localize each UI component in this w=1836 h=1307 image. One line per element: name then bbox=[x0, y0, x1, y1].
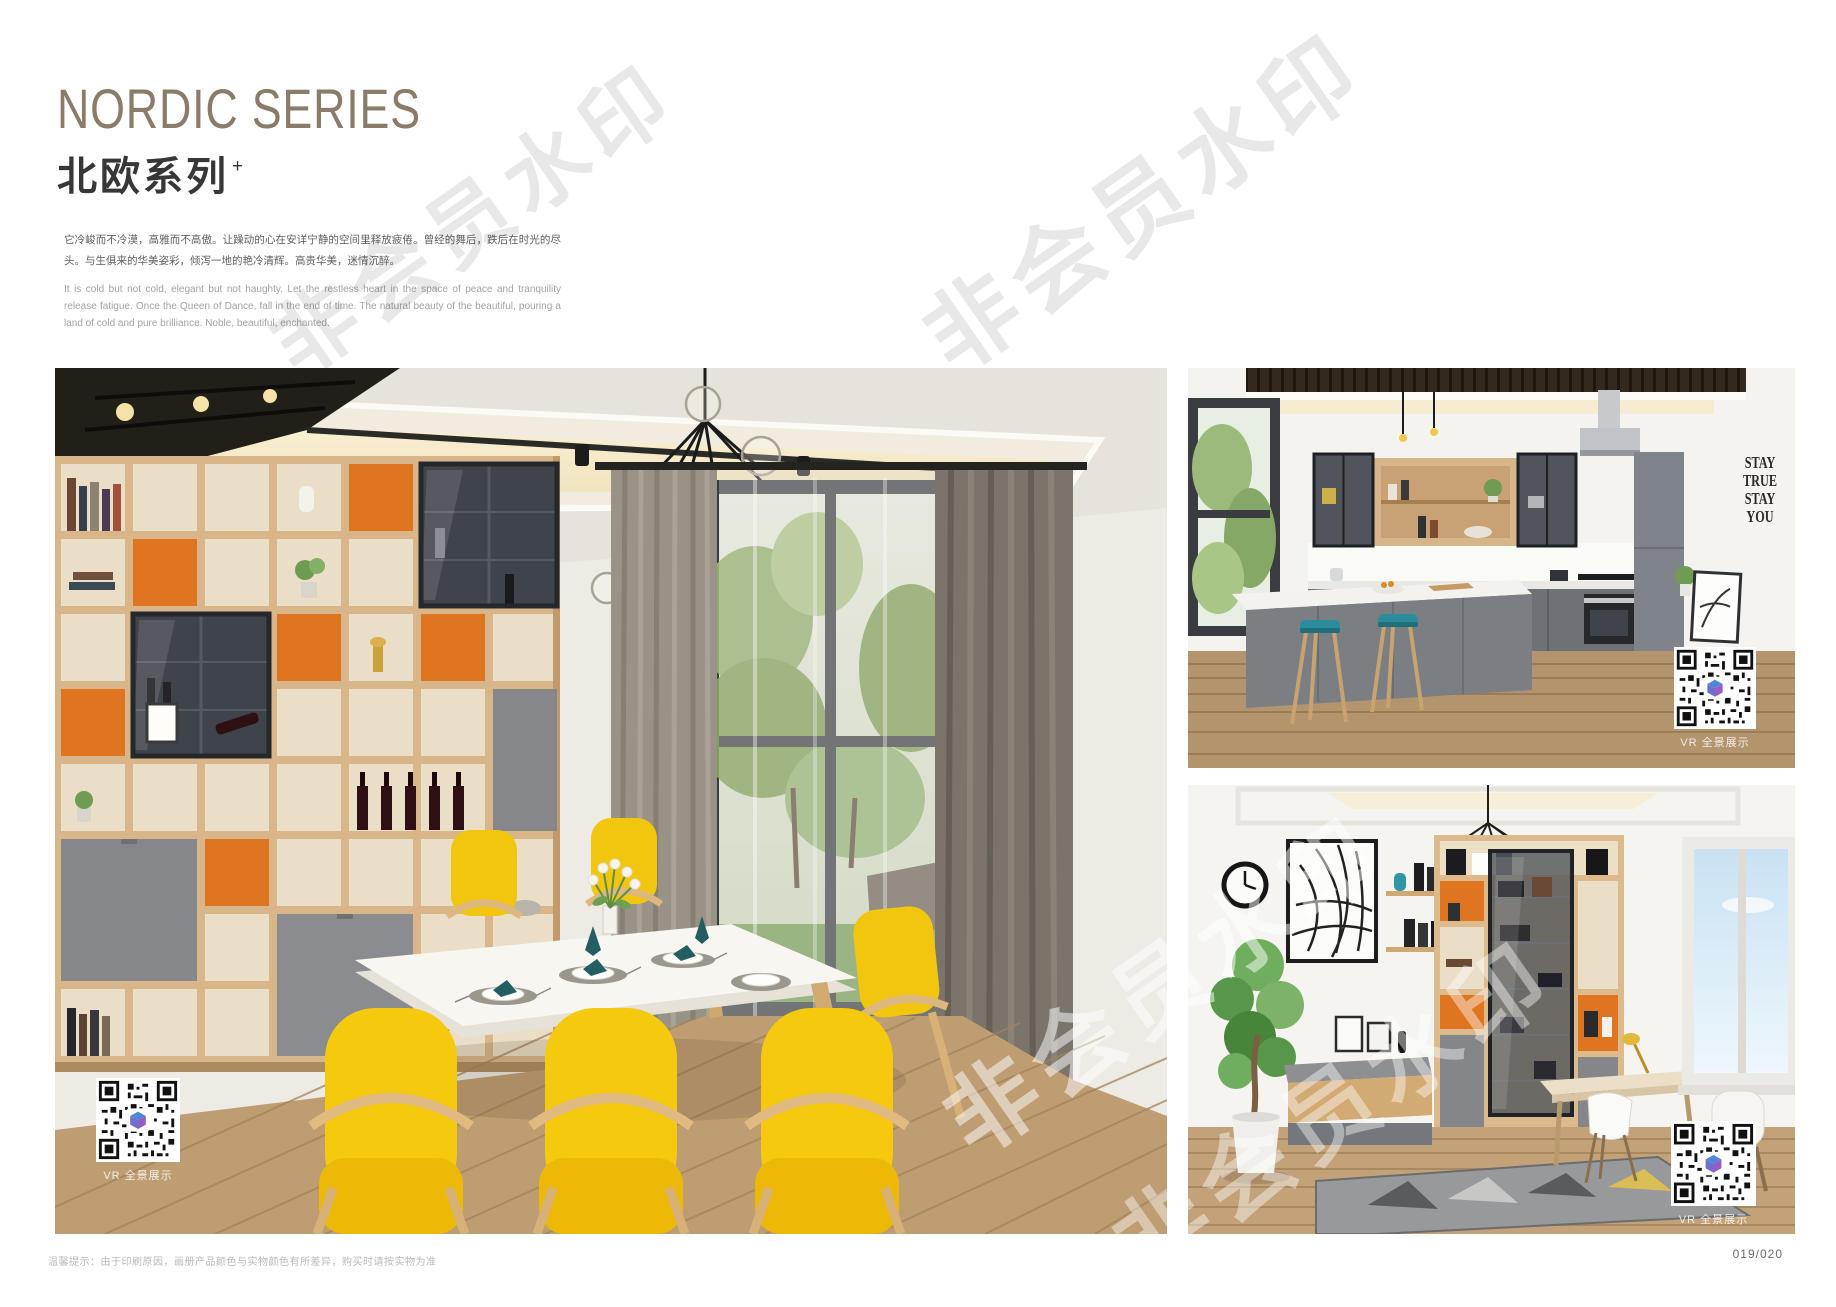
decal-line: TRUE bbox=[1743, 472, 1777, 490]
series-desc-zh: 它冷峻而不冷漠，高雅而不高傲。让躁动的心在安详宁静的空间里释放疲倦。曾经的舞后，… bbox=[64, 230, 561, 272]
ceiling-spotlight bbox=[263, 389, 277, 403]
vr-badge-dining: VR 全景展示 bbox=[96, 1078, 180, 1183]
vr-badge-study: VR 全景展示 bbox=[1671, 1121, 1756, 1227]
footer-note: 温馨提示：由于印刷原因，画册产品颜色与实物颜色有所差异，购买时请按实物为准 bbox=[48, 1253, 437, 1268]
glass-cabinet bbox=[1518, 454, 1576, 546]
ceiling-spotlight bbox=[116, 403, 134, 421]
glass-cabinet bbox=[1314, 454, 1373, 546]
dining-chairs-near bbox=[311, 1008, 907, 1234]
decal-line: STAY bbox=[1745, 490, 1776, 508]
glass-display-case bbox=[1490, 851, 1572, 1115]
abstract-wall-art bbox=[1288, 841, 1376, 961]
series-title-zh: 北欧系列+ bbox=[57, 144, 246, 202]
dining-chair bbox=[311, 1008, 471, 1234]
page-number: 019/020 bbox=[1690, 1247, 1783, 1261]
series-title-plus: + bbox=[232, 156, 246, 177]
watermark: 非会员水印 bbox=[893, 0, 1387, 398]
dining-chair bbox=[747, 1008, 907, 1234]
glass-display-cabinet bbox=[421, 464, 557, 606]
tall-cabinet bbox=[1634, 452, 1684, 651]
ceiling-spotlight bbox=[193, 396, 209, 412]
photo-dining-room: VR 全景展示 bbox=[55, 368, 1167, 1234]
dining-chair bbox=[531, 1008, 691, 1234]
vr-panorama-label: VR 全景展示 bbox=[1680, 734, 1749, 750]
qr-code-dining bbox=[96, 1078, 180, 1162]
wall-decal-stay-true: STAY TRUE STAY YOU bbox=[1743, 454, 1777, 526]
decal-line: STAY bbox=[1745, 454, 1776, 472]
open-wood-niche bbox=[1373, 458, 1518, 546]
cooktop bbox=[1578, 574, 1642, 580]
series-desc-en: It is cold but not cold, elegant but not… bbox=[64, 281, 561, 332]
wall-clock bbox=[1224, 864, 1266, 906]
series-title-zh-text: 北欧系列 bbox=[57, 155, 229, 199]
photo-kitchen: STAY TRUE STAY YOU VR 全景展示 bbox=[1188, 368, 1795, 768]
vr-badge-kitchen: VR 全景展示 bbox=[1674, 647, 1756, 750]
study-window bbox=[1678, 837, 1795, 1095]
vr-panorama-label: VR 全景展示 bbox=[1679, 1211, 1748, 1227]
qr-code-study bbox=[1671, 1121, 1756, 1206]
qr-code-kitchen bbox=[1674, 647, 1756, 729]
dining-room-illustration bbox=[55, 368, 1167, 1234]
vr-panorama-label: VR 全景展示 bbox=[103, 1167, 172, 1183]
wall-oven bbox=[1584, 594, 1634, 644]
series-title-en: NORDIC SERIES bbox=[57, 76, 421, 141]
catalog-page: NORDIC SERIES 北欧系列+ 它冷峻而不冷漠，高雅而不高傲。让躁动的心… bbox=[0, 0, 1836, 1307]
photo-study: VR 全景展示 bbox=[1188, 785, 1795, 1234]
decal-line: YOU bbox=[1746, 508, 1773, 526]
